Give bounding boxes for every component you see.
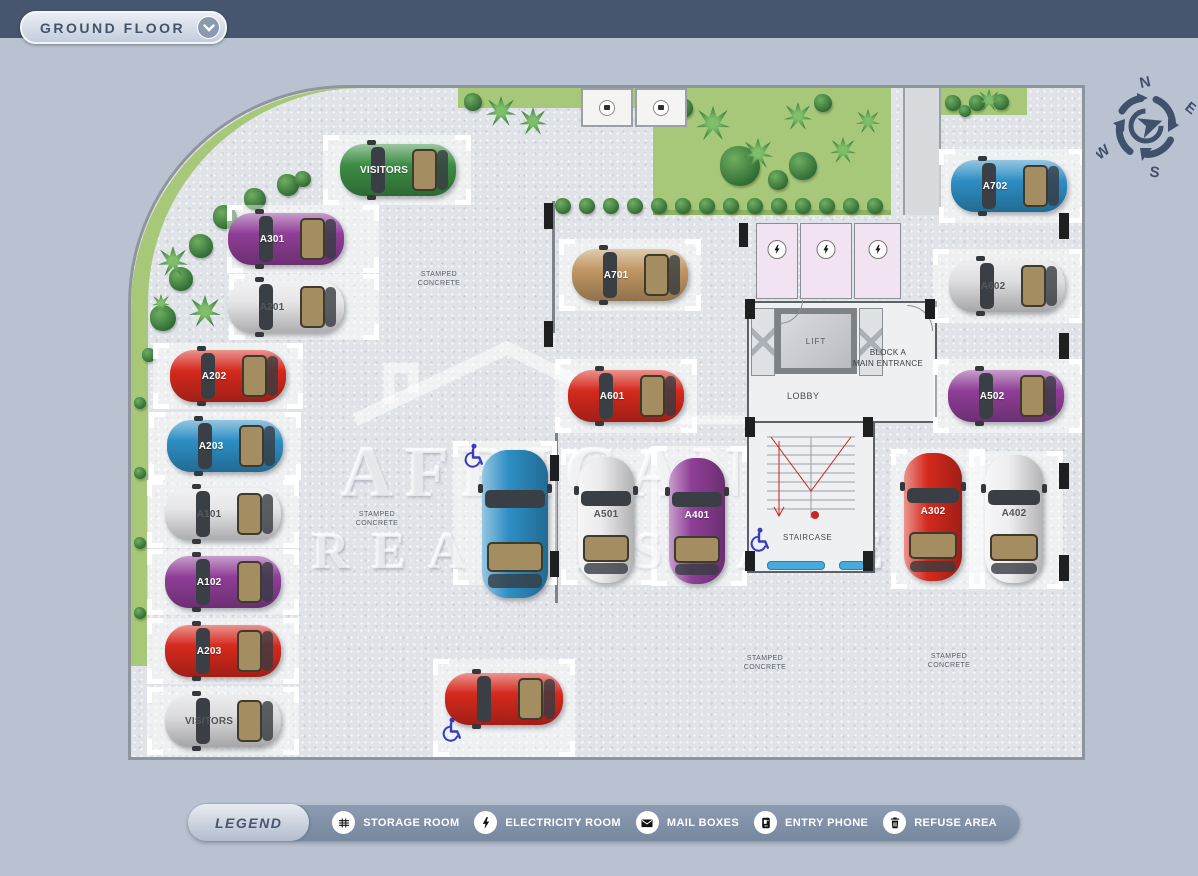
tree-icon [675, 198, 691, 214]
spot-corner-mark [285, 412, 301, 428]
spot-corner-mark [559, 659, 575, 675]
car-a701[interactable]: A701 [572, 249, 688, 301]
legend-item-refuse-area: REFUSE AREA [883, 811, 997, 834]
spot-corner-mark [891, 449, 907, 465]
spot-corner-mark [283, 739, 299, 755]
sunroof-icon [237, 561, 262, 603]
tree-icon [819, 198, 835, 214]
tree-icon [134, 537, 146, 549]
spot-corner-mark [283, 532, 299, 548]
legend-item-label: STORAGE ROOM [363, 817, 459, 829]
car-a502[interactable]: A502 [948, 370, 1064, 422]
spot-corner-mark [455, 135, 471, 151]
spot-corner-mark [969, 451, 985, 467]
surface-label: STAMPEDCONCRETE [744, 654, 786, 672]
rear-window [437, 150, 447, 190]
car-label: A301 [244, 213, 300, 265]
rear-window [267, 356, 277, 396]
sunroof-icon [242, 355, 267, 397]
rear-window [262, 494, 272, 534]
car-a202[interactable]: A202 [170, 350, 286, 402]
tree-icon [189, 234, 213, 258]
pillar [925, 299, 935, 319]
spot-corner-mark [147, 618, 163, 634]
car-a102[interactable]: A102 [165, 556, 281, 608]
rear-window [262, 631, 272, 671]
spot-corner-mark [363, 324, 379, 340]
spot-corner-mark [969, 573, 985, 589]
car-label: A302 [904, 491, 962, 532]
spot-corner-mark [1069, 149, 1085, 165]
lift-label: LIFT [806, 337, 826, 346]
spot-corner-mark [1069, 417, 1085, 433]
spot-corner-mark [283, 687, 299, 703]
tree-icon [134, 607, 146, 619]
rear-window [1045, 376, 1055, 416]
spot-corner-mark [283, 668, 299, 684]
spot-corner-mark [933, 359, 949, 375]
spot-corner-mark [1069, 359, 1085, 375]
spot-corner-mark [1069, 207, 1085, 223]
rear-window [910, 561, 956, 573]
spot-corner-mark [285, 464, 301, 480]
car-label: A701 [588, 249, 644, 301]
rear-window [544, 679, 555, 719]
spot-corner-mark [153, 343, 169, 359]
landscaping-strip-left [131, 388, 147, 666]
spot-corner-mark [731, 570, 747, 586]
spot-corner-mark [933, 249, 949, 265]
sunroof-icon [1021, 265, 1046, 307]
electricity-room [800, 223, 852, 299]
pillar [544, 203, 553, 229]
mirror-icon [1042, 484, 1047, 493]
spot-corner-mark [153, 393, 169, 409]
pillar [1059, 555, 1069, 581]
spot-corner-mark [433, 659, 449, 675]
electricity-icon [817, 240, 836, 259]
car-a203[interactable]: A203 [165, 625, 281, 677]
compass-n: N [1138, 74, 1152, 92]
pillar [1059, 213, 1069, 239]
floor-selector-label: GROUND FLOOR [40, 20, 185, 36]
spot-corner-mark [147, 480, 163, 496]
spot-corner-mark [561, 569, 577, 585]
legend-item-electricity-room: ELECTRICITY ROOM [474, 811, 621, 834]
car-a601[interactable]: A601 [568, 370, 684, 422]
sunroof-icon [300, 286, 325, 328]
palm-tree-icon [519, 107, 547, 135]
spot-corner-mark [685, 295, 701, 311]
car-label: A101 [181, 488, 237, 540]
rear-window [991, 563, 1037, 575]
electricity-icon [868, 240, 887, 259]
car-a402[interactable]: A402 [985, 455, 1043, 583]
car-label: A401 [669, 496, 725, 536]
spot-corner-mark [363, 205, 379, 221]
spot-corner-mark [147, 668, 163, 684]
spot-corner-mark [933, 307, 949, 323]
car-label [482, 494, 548, 541]
car-visitors[interactable]: VISITORS [165, 695, 281, 747]
rear-window [262, 562, 272, 602]
spot-corner-mark [1069, 249, 1085, 265]
tree-icon [789, 152, 817, 180]
rear-window [325, 219, 335, 259]
mirror-icon [981, 484, 986, 493]
spot-corner-mark [555, 417, 571, 433]
legend-items: STORAGE ROOMELECTRICITY ROOMMAIL BOXESEN… [309, 811, 1020, 834]
pillar [550, 455, 559, 481]
car-label: A702 [967, 160, 1023, 212]
sunroof-icon [640, 375, 665, 417]
electricity-room-icon [474, 811, 497, 834]
pillar [863, 551, 873, 571]
compass-e: E [1182, 99, 1196, 119]
car-label: VISITORS [356, 144, 412, 196]
spot-corner-mark [1069, 307, 1085, 323]
car-label: A201 [244, 281, 300, 333]
tree-icon [169, 267, 193, 291]
utility-icon [599, 100, 615, 116]
rear-window [1046, 266, 1056, 306]
tree-icon [295, 171, 311, 187]
surface-label: STAMPEDCONCRETE [418, 270, 460, 288]
pillar [1059, 333, 1069, 359]
car-a602[interactable]: A602 [949, 260, 1065, 312]
tree-icon [747, 198, 763, 214]
spot-corner-mark [651, 570, 667, 586]
tree-icon [579, 198, 595, 214]
car-a301[interactable]: A301 [228, 213, 344, 265]
spot-corner-mark [283, 618, 299, 634]
pillar [745, 299, 755, 319]
spot-corner-mark [555, 359, 571, 375]
spot-corner-mark [731, 446, 747, 462]
wheelchair-icon [747, 527, 771, 553]
tree-icon [134, 397, 146, 409]
tree-icon [814, 94, 832, 112]
car-label: A402 [985, 493, 1043, 534]
car-a302[interactable]: A302 [904, 453, 962, 581]
refuse-area-icon [883, 811, 906, 834]
mirror-icon [961, 482, 966, 491]
tree-icon [651, 198, 667, 214]
spot-corner-mark [933, 417, 949, 433]
spot-corner-mark [287, 393, 303, 409]
tree-icon [768, 170, 788, 190]
car-label: A602 [965, 260, 1021, 312]
car-a101[interactable]: A101 [165, 488, 281, 540]
compass-rose: N E W S [1096, 74, 1196, 180]
sunroof-icon [674, 536, 720, 563]
chevron-down-icon [197, 16, 220, 39]
spot-corner-mark [939, 149, 955, 165]
entrance-mat [839, 561, 865, 570]
pillar [745, 551, 755, 571]
rear-window [1048, 166, 1058, 206]
pillar [739, 223, 748, 247]
compass-w: W [1096, 141, 1114, 164]
tree-icon [699, 198, 715, 214]
sunroof-icon [644, 254, 669, 296]
surface-label: STAMPEDCONCRETE [356, 510, 398, 528]
car-a702[interactable]: A702 [951, 160, 1067, 212]
car-label: VISITORS [181, 695, 237, 747]
spot-corner-mark [685, 239, 701, 255]
mirror-icon [547, 484, 552, 493]
wheelchair-icon [439, 717, 463, 743]
spot-corner-mark [453, 569, 469, 585]
car-a401[interactable]: A401 [669, 458, 725, 584]
spot-corner-mark [681, 359, 697, 375]
spot-corner-mark [455, 189, 471, 205]
spot-corner-mark [147, 739, 163, 755]
spot-corner-mark [149, 412, 165, 428]
tree-icon [627, 198, 643, 214]
sunroof-icon [239, 425, 264, 467]
sunroof-icon [237, 700, 262, 742]
electricity-room [756, 223, 798, 299]
spot-corner-mark [149, 464, 165, 480]
mirror-icon [900, 482, 905, 491]
car-visitors[interactable]: VISITORS [340, 144, 456, 196]
driveway [903, 88, 941, 215]
spot-corner-mark [939, 207, 955, 223]
spot-corner-mark [287, 343, 303, 359]
legend-bar: LEGEND STORAGE ROOMELECTRICITY ROOMMAIL … [188, 804, 1020, 841]
legend-item-mail-boxes: MAIL BOXES [636, 811, 739, 834]
spot-corner-mark [147, 599, 163, 615]
spot-corner-mark [147, 687, 163, 703]
legend-item-label: REFUSE AREA [914, 817, 997, 829]
spot-corner-mark [283, 480, 299, 496]
spot-corner-mark [891, 573, 907, 589]
pillar [550, 551, 559, 577]
floor-plan: AFRICANOS REAL ESTATE LIFT BLOCK A MAIN … [128, 85, 1085, 760]
tree-icon [795, 198, 811, 214]
spot-corner-mark [147, 549, 163, 565]
spot-corner-mark [559, 741, 575, 757]
sunroof-icon [518, 678, 543, 720]
car-label: A202 [186, 350, 242, 402]
spot-corner-mark [559, 239, 575, 255]
sunroof-icon [1020, 375, 1045, 417]
car-label [462, 673, 519, 725]
surface-label: STAMPEDCONCRETE [928, 652, 970, 670]
lobby-label: LOBBY [787, 391, 820, 401]
spot-corner-mark [323, 135, 339, 151]
utility-room [581, 88, 633, 127]
electricity-icon [768, 240, 787, 259]
rear-window [669, 255, 679, 295]
spot-corner-mark [651, 446, 667, 462]
sunroof-icon [1023, 165, 1048, 207]
sunroof-icon [583, 535, 629, 562]
mirror-icon [633, 486, 638, 495]
utility-icon [653, 100, 669, 116]
pillar [863, 417, 873, 437]
car-label: A203 [181, 625, 237, 677]
storage-room-icon [332, 811, 355, 834]
spot-corner-mark [681, 417, 697, 433]
spot-corner-mark [323, 189, 339, 205]
car-a201[interactable]: A201 [228, 281, 344, 333]
mirror-icon [478, 484, 483, 493]
tree-icon [464, 93, 482, 111]
rear-window [488, 574, 542, 587]
tree-icon [771, 198, 787, 214]
rear-window [675, 564, 719, 575]
tree-icon [867, 198, 883, 214]
spot-corner-mark [363, 257, 379, 273]
tree-icon [134, 467, 146, 479]
compass-s: S [1148, 163, 1160, 180]
legend-item-label: ENTRY PHONE [785, 817, 868, 829]
tree-icon [843, 198, 859, 214]
mirror-icon [724, 487, 729, 496]
sunroof-icon [909, 532, 957, 559]
car-label: A501 [578, 495, 634, 535]
spot-corner-mark [561, 449, 577, 465]
utility-room [635, 88, 687, 127]
wheelchair-icon [461, 443, 485, 469]
spot-corner-mark [283, 549, 299, 565]
car-label: A203 [183, 420, 239, 472]
pillar [745, 417, 755, 437]
rear-window [665, 376, 675, 416]
pillar [1059, 463, 1069, 489]
tree-icon [723, 198, 739, 214]
legend-item-entry-phone: ENTRY PHONE [754, 811, 868, 834]
pillar [544, 321, 553, 347]
car-label: A601 [584, 370, 640, 422]
sunroof-icon [300, 218, 325, 260]
mail-boxes-icon [636, 811, 659, 834]
tree-icon [603, 198, 619, 214]
electricity-room [854, 223, 901, 299]
spot-corner-mark [363, 274, 379, 290]
main-entrance-label: BLOCK A MAIN ENTRANCE [845, 347, 931, 369]
legend-title: LEGEND [188, 804, 309, 841]
mirror-icon [574, 486, 579, 495]
car-unlabeled[interactable] [482, 450, 548, 598]
entry-phone-icon [754, 811, 777, 834]
rear-window [264, 426, 274, 466]
spot-corner-mark [559, 295, 575, 311]
rear-window [325, 287, 335, 327]
sunroof-icon [237, 630, 262, 672]
legend-item-storage-room: STORAGE ROOM [332, 811, 459, 834]
staircase-label: STAIRCASE [783, 533, 832, 542]
spot-corner-mark [283, 599, 299, 615]
legend-item-label: MAIL BOXES [667, 817, 739, 829]
tree-icon [959, 105, 971, 117]
legend-item-label: ELECTRICITY ROOM [505, 817, 621, 829]
spot-corner-mark [147, 532, 163, 548]
sunroof-icon [487, 542, 543, 573]
rear-window [262, 701, 272, 741]
entrance-mat [767, 561, 825, 570]
sunroof-icon [412, 149, 437, 191]
rear-window [584, 563, 628, 574]
car-label: A102 [181, 556, 237, 608]
sunroof-icon [237, 493, 262, 535]
car-label: A502 [964, 370, 1020, 422]
floor-selector-dropdown[interactable]: GROUND FLOOR [20, 11, 227, 44]
sunroof-icon [990, 534, 1038, 561]
tree-icon [555, 198, 571, 214]
car-a501[interactable]: A501 [578, 457, 634, 583]
car-a203[interactable]: A203 [167, 420, 283, 472]
tree-icon [969, 95, 985, 111]
spot-corner-mark [433, 741, 449, 757]
lobby-room: LIFT BLOCK A MAIN ENTRANCE LOBBY [747, 301, 937, 423]
mirror-icon [665, 487, 670, 496]
tree-icon [150, 305, 176, 331]
